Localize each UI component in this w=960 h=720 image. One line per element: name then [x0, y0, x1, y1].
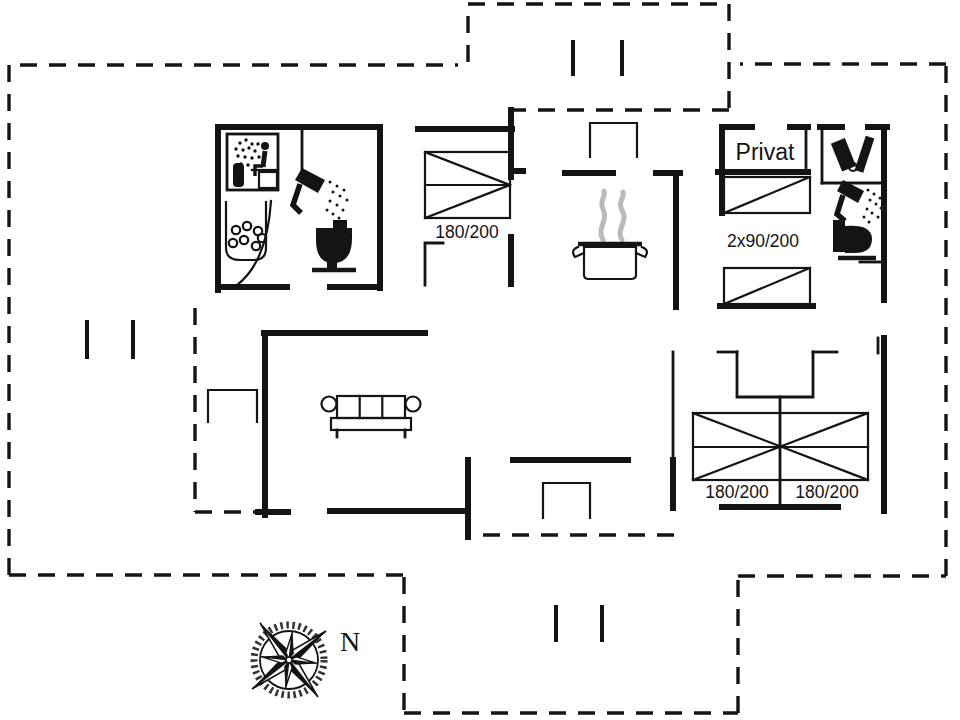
- shower-icon-2: [837, 180, 883, 224]
- privat-label: Privat: [736, 139, 795, 165]
- steam-icon: [601, 191, 624, 240]
- toilet-icon-2: [833, 220, 876, 258]
- entrance-step-marks: [87, 42, 622, 640]
- floor-plan-drawing: Privat 180/200 2x90/200 180/200 180/200 …: [0, 0, 960, 720]
- compass-rose-icon: [223, 594, 355, 720]
- bed-left-icon: [425, 152, 510, 218]
- sauna-steam-dots: [234, 138, 260, 166]
- sink-icon: [831, 136, 874, 173]
- terrace-dashed-outline: [9, 4, 946, 713]
- sauna-person: [252, 142, 277, 188]
- sofa-icon: [322, 396, 421, 437]
- north-label: N: [340, 626, 360, 657]
- toilet-icon: [312, 220, 356, 270]
- double-bed-right-label: 180/200: [795, 482, 859, 502]
- bed-left-label: 180/200: [435, 222, 499, 242]
- twin-beds-label: 2x90/200: [727, 231, 799, 251]
- cooking-pot-icon: [573, 244, 647, 279]
- double-bed-left-label: 180/200: [705, 482, 769, 502]
- sauna-icon: [227, 134, 278, 190]
- floor-plan-canvas: Privat 180/200 2x90/200 180/200 180/200 …: [0, 0, 960, 720]
- shower-icon: [293, 168, 349, 220]
